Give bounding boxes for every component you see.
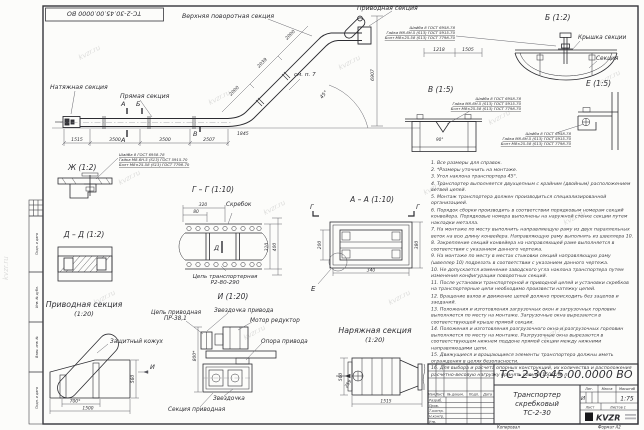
note-item: 15. Движущиеся и вращающиеся элементы тр…	[431, 352, 635, 365]
dim-380: 380	[414, 241, 420, 250]
note-item: 14. Положения и изготовления разгрузочно…	[431, 326, 635, 351]
dim-560-tension: 560	[338, 373, 344, 382]
logo-subtext-bar	[625, 414, 636, 416]
label-chain-model: Р2-80-290	[211, 280, 240, 286]
scale-value: 1:75	[620, 396, 634, 403]
note-item: 3. Угол наклона транспортера 45°.	[431, 174, 635, 180]
label-drive-section: Приводная секция	[357, 5, 418, 12]
side-label: Подп. и дата	[35, 387, 39, 409]
row-approved: Утв.	[429, 420, 436, 424]
note-item: 13. Положения и изготовления загрузочных…	[431, 306, 635, 325]
note-item: 6. Порядок сборки производить в соответс…	[431, 207, 635, 226]
section-gg-linework	[179, 224, 268, 269]
tension-section-linework	[336, 358, 425, 395]
row-ncontrol: Н.контр.	[429, 415, 444, 419]
dim-400: 400	[272, 243, 278, 252]
fastener-spec-2: Шайба 8 ГОСТ 6958-78 Гайка М8-6Н.5 (S13)…	[385, 25, 556, 46]
part-name-line1: Транспортер	[513, 391, 561, 399]
note-item: 12. Вращение валов и движение цепей долж…	[431, 293, 635, 306]
section-marker-v: В	[193, 130, 198, 138]
frame-side-labels: Подп. и дата Инв. № дубл. Взам. инв. № П…	[35, 233, 39, 409]
label-scraper: Скребок	[226, 202, 252, 208]
detail-e-linework	[578, 92, 618, 150]
dim-310: 310	[264, 243, 270, 252]
row-developed: Разраб.	[429, 398, 442, 402]
note-item: 1. Все размеры для справок.	[431, 160, 635, 166]
copied-label: Копировал	[497, 425, 520, 430]
view-title-e: Е (1:5)	[586, 79, 611, 88]
dim-1515: 1515	[71, 137, 83, 143]
label-see-note-7: см. п. 7	[294, 72, 316, 78]
note-item: 10. Не допускается изменение заводского …	[431, 266, 635, 279]
format-label: Формат А2	[598, 425, 621, 430]
note-item: 5. Монтаж транспортера должен производит…	[431, 194, 635, 207]
dim-200: 200	[317, 241, 323, 250]
note-item: 16. Для выбора и расчета опорных констру…	[431, 365, 635, 378]
marker-g-left: Г	[310, 203, 315, 211]
view-title-drive-section: Приводная секция	[46, 300, 123, 309]
marker-e-callout: Е	[311, 285, 316, 293]
col-podp: Подп.	[469, 393, 479, 397]
fastener-spec-3: Шайба 8 ГОСТ 6958-78 Гайка М8-6Н.5 (S13)…	[447, 96, 522, 124]
detail-v-linework	[405, 115, 482, 152]
label-motor-reducer: Мотор редуктор	[250, 318, 300, 324]
note-item: 11. После установки транспортерной и при…	[431, 280, 635, 293]
view-title-dd: Д – Д (1:2)	[63, 230, 105, 239]
watermark-text: kvzr.ru	[262, 198, 287, 216]
section-aa-dimensions	[318, 222, 423, 284]
spec-bolt: Болт М8×25.58 (S13) ГОСТ 7798-70	[501, 141, 572, 146]
label-drive-chain-model: ПР-38,1	[164, 316, 187, 322]
rotated-doc-number-stamp: ТС-2-30.45.00.0000 ВО	[67, 10, 141, 17]
label-section-cover: Крышка секции	[578, 35, 627, 41]
note-item: 2. *Размеры уточнить на монтаже.	[431, 167, 635, 173]
view-title-drive-scale: (1:20)	[74, 310, 94, 318]
label-sheets: Листов 1	[609, 406, 626, 410]
marker-g-right: Г	[416, 203, 421, 211]
label-drive-sprocket: Звездочка привода	[214, 308, 274, 314]
section-dd-linework	[58, 247, 112, 281]
view-title-aa: А – А (1:10)	[349, 195, 394, 204]
fastener-spec-1: Шайба 8 ГОСТ 6958-78 Гайка М8-6Н.5 (S13)…	[96, 152, 190, 179]
view-i-linework	[201, 327, 276, 392]
view-i-labels: Звездочка привода Мотор редуктор Опора п…	[168, 308, 308, 413]
view-title-b: Б (1:2)	[545, 13, 571, 22]
col-docnum: № докум.	[446, 393, 464, 397]
watermark-text: kvzr.ru	[117, 168, 142, 186]
side-label: Подп. и дата	[35, 233, 39, 255]
section-marker-d: Д	[213, 244, 219, 252]
dim-1505: 1505	[462, 47, 474, 53]
watermark-text: kvzr.ru	[207, 88, 232, 106]
dim-slope-2000b: 2000	[284, 29, 297, 42]
drive-chain-label: Цепь приводная ПР-38,1	[151, 310, 203, 334]
kvzr-logo-text: KVZR	[596, 414, 620, 423]
col-data: Дата	[482, 393, 492, 397]
dim-6907: 6907	[370, 69, 376, 81]
dim-560: 560	[130, 375, 136, 384]
watermark-text: kvzr.ru	[337, 53, 362, 71]
dim-2507: 2507	[203, 137, 215, 143]
part-name-line2: скребковый	[515, 400, 559, 408]
label-upper-turn-section: Верхняя поворотная секция	[182, 13, 274, 20]
dim-80: 80	[193, 209, 199, 215]
watermark-side-text: kvzr.ru	[2, 256, 10, 280]
dim-700: 700*	[70, 399, 81, 405]
dim-1218: 1218	[433, 47, 445, 53]
label-drive-support: Опора привода	[261, 339, 308, 345]
label-protective-cover: Защитный кожух	[110, 339, 164, 345]
spec-bolt: Болт М8×25.58 (S13) ГОСТ 7798-70	[385, 35, 456, 40]
fastener-spec-4: Шайба 8 ГОСТ 6958-78 Гайка М8-6Н.5 (S13)…	[501, 124, 584, 146]
dim-1845: 1845	[237, 131, 249, 137]
detail-b-labels: Крышка секции Секция	[572, 35, 627, 68]
label-sprocket: Звездочка	[213, 396, 245, 402]
dim-3500: 3500	[109, 137, 121, 143]
col-list: Лист	[435, 393, 446, 397]
dim-angle-45: 45°	[319, 89, 330, 100]
label-straight-section: Прямая секция	[120, 93, 170, 100]
label-section: Секция	[596, 56, 619, 62]
view-title-i: И (1:20)	[218, 292, 249, 301]
row-checked: Пров.	[429, 404, 439, 408]
dim-1500: 1500	[82, 406, 93, 412]
part-name-line3: ТС-2-30	[523, 409, 551, 417]
view-title-zh: Ж (1:2)	[67, 163, 96, 172]
dim-90deg: 90°	[436, 137, 443, 142]
drawing-sheet: kvzr.ru kvzr.ru kvzr.ru kvzr.ru kvzr.ru …	[0, 0, 644, 430]
dim-320: 320	[199, 202, 208, 208]
watermark-text: kvzr.ru	[387, 288, 412, 306]
tension-section-dim-labels: 560 259 1515	[338, 373, 392, 405]
spec-bolt: Болт М8×25.58 (S13) ГОСТ 7798-70	[451, 106, 522, 111]
dim-800: 800*	[192, 350, 198, 361]
label-drive-section-bottom: Секция приводная	[168, 407, 226, 413]
note-item: 4. Транспортер выполняется двухцепным с …	[431, 181, 635, 194]
note-item: 8. Закрепление секций конвейера на напра…	[431, 240, 635, 253]
litera-value: И	[581, 396, 585, 402]
side-label: Инв. № дубл.	[35, 286, 39, 308]
section-marker-b: Б	[136, 100, 141, 108]
view-title-gg: Г – Г (1:10)	[192, 185, 234, 194]
view-title-tension-section: Наряжная секция	[338, 326, 412, 335]
dim-slope-2000: 2000	[228, 85, 241, 98]
dim-1515-tension: 1515	[380, 399, 391, 405]
dim-slope-2039: 2039	[256, 57, 269, 70]
label-tension-section: Натяжная секция	[50, 84, 108, 91]
spec-bolt: Болт М8×25.58 (S13) ГОСТ 7798-70	[119, 162, 190, 167]
row-tcontrol: Т.контр.	[429, 409, 444, 413]
watermark-text: kvzr.ru	[77, 43, 102, 61]
view-marker-i: И	[150, 363, 155, 371]
watermark-text: kvzr.ru	[487, 108, 512, 126]
label-sheet: Лист	[585, 406, 596, 410]
detail-zh-linework	[58, 173, 112, 198]
logo-subtext-bar	[625, 418, 636, 420]
dim-3500b: 3500	[159, 137, 171, 143]
dim-340: 340	[367, 268, 376, 274]
technical-notes: 1. Все размеры для справок. 2. *Размеры …	[431, 160, 635, 388]
main-elevation-linework	[52, 16, 420, 129]
section-aa-linework	[313, 211, 414, 271]
side-label: Взам. инв. №	[35, 336, 39, 358]
section-marker-a-top: А	[120, 100, 125, 108]
kvzr-logo-icon	[585, 413, 593, 422]
note-item: 9. На монтаже по месту в местах стыковки…	[431, 253, 635, 266]
view-title-tension-scale: (1:20)	[365, 336, 385, 344]
view-title-v: В (1:5)	[428, 85, 454, 94]
note-item: 7. На монтаже по месту выполнить направл…	[431, 227, 635, 240]
